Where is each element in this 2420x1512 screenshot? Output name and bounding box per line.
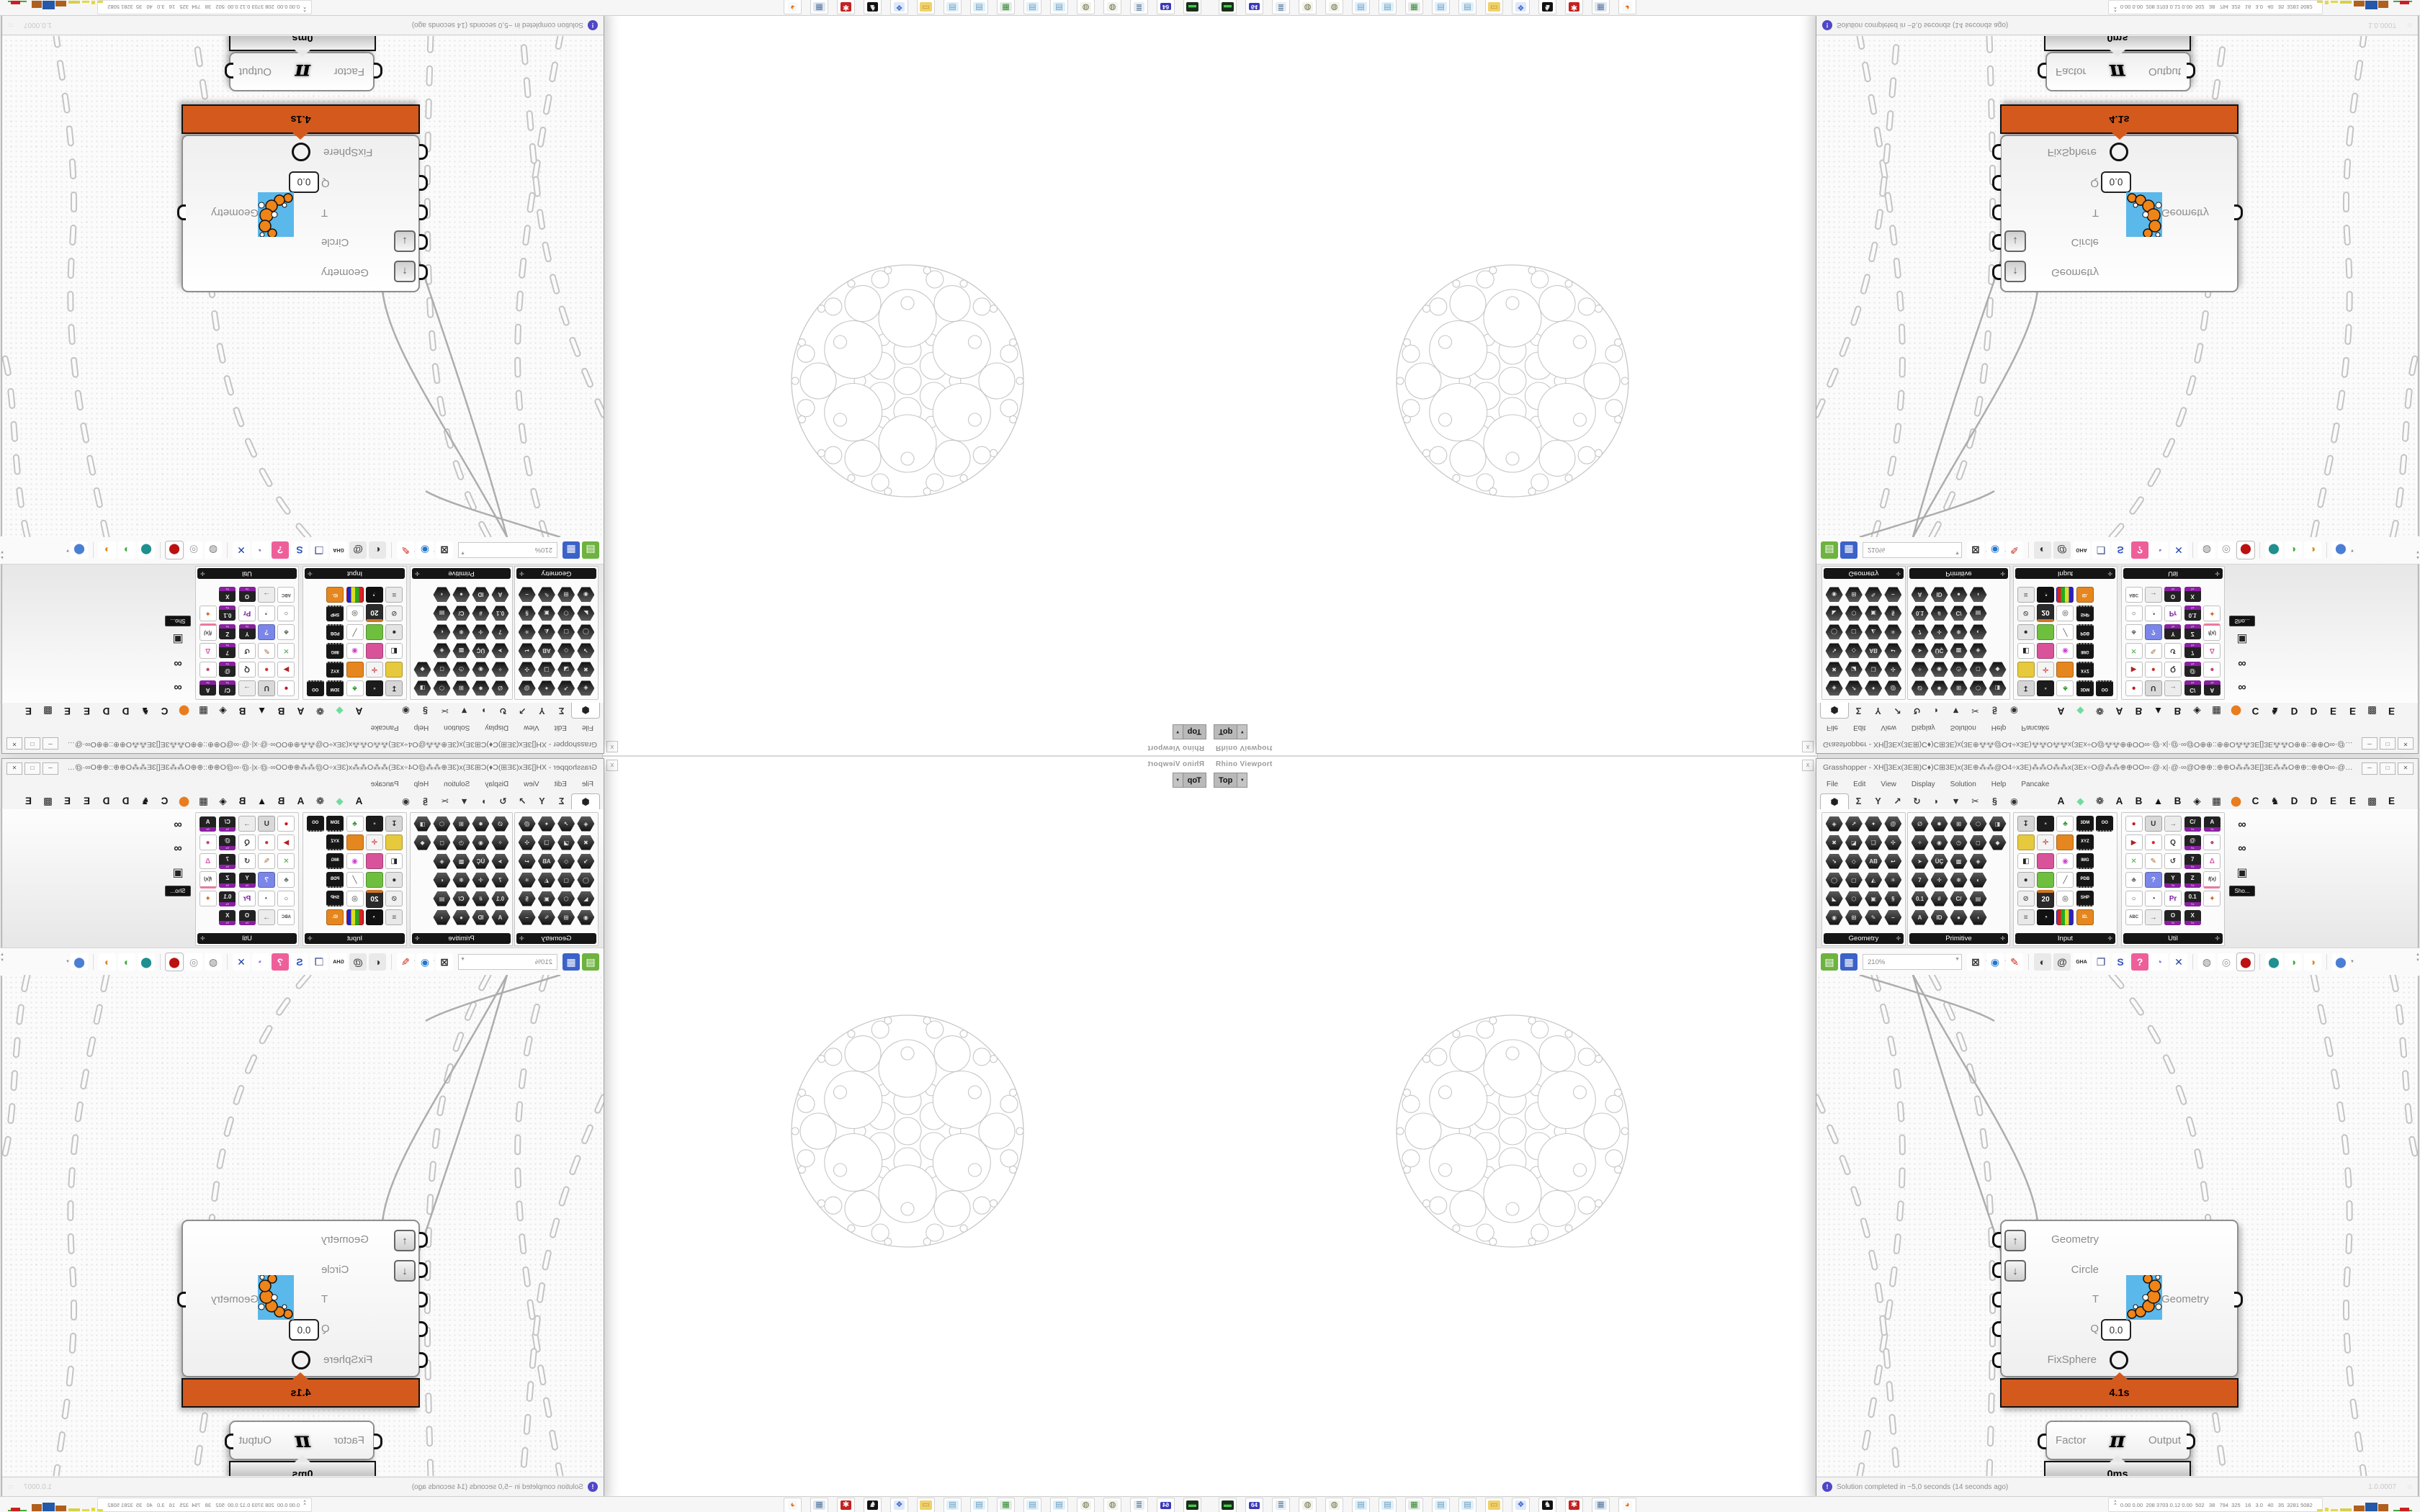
palette-cell-icon[interactable]: Y≡x (239, 625, 256, 640)
palette-cell-icon[interactable]: ABC (277, 587, 295, 603)
tab-plugin[interactable]: D (2285, 703, 2304, 719)
navball-icon[interactable]: ◐ (2034, 953, 2051, 971)
palette-cell-icon[interactable]: → (2164, 680, 2182, 696)
tab-plugin[interactable]: ◈ (2187, 793, 2207, 809)
preview-off-icon[interactable]: ◍ (205, 953, 222, 971)
palette-cell-icon[interactable]: ID. (2076, 587, 2094, 603)
palette-cell-icon[interactable]: ↧ (2017, 680, 2035, 696)
tab-category-icon[interactable]: ↗ (1888, 793, 1907, 809)
palette-cell-icon[interactable]: X≡x (219, 588, 236, 603)
zoom-extents-icon[interactable]: ⊠▼ (1967, 541, 1984, 559)
palette-cell-icon[interactable]: ✛ (2037, 662, 2054, 678)
balloons-icon[interactable]: ◔ (252, 541, 269, 559)
palette-cell-icon[interactable]: ◐ (1970, 873, 1987, 888)
palette-cell-icon[interactable]: ⊞ (453, 681, 470, 696)
palette-cell-icon[interactable]: ◇ (557, 644, 575, 659)
tab-plugin[interactable]: C (155, 793, 174, 809)
palette-cell-icon[interactable]: ✖ (577, 835, 594, 850)
palette-cell-icon[interactable]: ▪ (2037, 816, 2054, 832)
preview-eye-icon[interactable]: ◉▼ (416, 541, 434, 559)
palette-cell-icon[interactable]: ◇ (1845, 854, 1863, 869)
balloons-icon[interactable]: ◔ (252, 953, 269, 971)
tab-plugin[interactable]: ◆ (2071, 793, 2090, 809)
tab-params-selected[interactable]: ⬢ (1820, 793, 1849, 809)
palette-cell-icon[interactable]: ◧ (2017, 853, 2035, 869)
palette-cell-icon[interactable]: ✣ (1884, 835, 1901, 850)
preview-wireframe-icon[interactable]: ◎ (185, 953, 202, 971)
palette-cell-icon[interactable]: @ (1884, 681, 1901, 696)
tab-category-icon[interactable]: ↻ (1907, 793, 1927, 809)
palette-cell-icon[interactable]: → (258, 909, 275, 925)
palette-cell-icon[interactable]: ⊞ (453, 816, 470, 832)
palette-cell-icon[interactable]: ✣ (519, 835, 536, 850)
notepad-icon[interactable]: ▤ (1379, 0, 1397, 14)
menu-item-help[interactable]: Help (414, 780, 429, 788)
palette-cell-icon[interactable]: ◉ (346, 853, 364, 869)
palette-cell-icon[interactable]: AB (1865, 644, 1882, 659)
palette-cell-icon[interactable]: ● (258, 662, 275, 678)
palette-cell-icon[interactable]: ▢ (1845, 873, 1863, 888)
palette-cell-icon[interactable]: ID (472, 910, 490, 925)
palette-cell-icon[interactable]: ∞ (2231, 814, 2253, 836)
palette-cell-icon[interactable]: 0.1 (492, 606, 509, 621)
tab-plugin[interactable]: A (2051, 703, 2071, 719)
cylinder-teal-icon[interactable]: ⬤ (2265, 541, 2282, 559)
save-file-icon[interactable]: ▦ (563, 953, 580, 971)
palette-label-input[interactable]: Input✛ (305, 933, 405, 944)
wire-cross-icon[interactable]: ✕ (2170, 541, 2187, 559)
sphere-blue-icon[interactable]: ⬤▼ (2332, 953, 2349, 971)
palette-cell-icon[interactable]: XYZ (2076, 662, 2094, 678)
input-grip[interactable] (1992, 204, 2001, 220)
palette-cell-icon[interactable]: ⊘ (2017, 891, 2035, 906)
q-value-box[interactable]: 0.0 (289, 171, 319, 193)
palette-cell-icon[interactable]: ♣ (277, 624, 295, 640)
cylinder-green-icon[interactable]: ◑ (2285, 953, 2302, 971)
palette-cell-icon[interactable]: 20 (2037, 605, 2054, 623)
palette-cell-icon[interactable]: ✎ (258, 643, 275, 659)
palette-cell-icon[interactable] (2037, 624, 2054, 640)
sketch-pen-icon[interactable]: ✎ (397, 541, 414, 559)
palette-cell-icon[interactable]: ✣ (519, 662, 536, 678)
palette-label-util[interactable]: Util✛ (2123, 568, 2223, 579)
palette-cell-icon[interactable]: → (2145, 587, 2162, 603)
tab-plugin[interactable]: D (2304, 793, 2323, 809)
maximize-button[interactable]: □ (2380, 737, 2396, 750)
palette-cell-icon[interactable]: ≡ (385, 909, 403, 925)
notepad-icon[interactable]: ▤ (1352, 1498, 1370, 1512)
knot-coin-icon[interactable]: ◍ (1299, 0, 1317, 14)
calculator-icon[interactable]: ▦ (810, 1498, 828, 1512)
palette-label-util[interactable]: Util✛ (2123, 933, 2223, 944)
gha-loader-icon[interactable]: GHA (2073, 953, 2090, 971)
palette-cell-icon[interactable]: ✛ (366, 834, 383, 850)
chat-monitor-icon[interactable]: ❖ (890, 1498, 908, 1512)
search-s-icon[interactable]: S (291, 953, 308, 971)
palette-cell-icon[interactable]: – (519, 588, 536, 603)
tab-plugin[interactable]: ▩ (2362, 703, 2382, 719)
palette-cell-icon[interactable]: Z≡x (2184, 873, 2201, 888)
palette-cell-icon[interactable]: ? (258, 872, 275, 888)
preview-eye-icon[interactable]: ◉▼ (1986, 953, 2004, 971)
tab-plugin[interactable]: C (2246, 703, 2265, 719)
zoom-level-combo[interactable]: 210%▼ (1863, 542, 1962, 558)
palette-cell-icon[interactable]: ▤ (434, 606, 451, 621)
wolf-icon[interactable]: ♞ (1538, 1498, 1556, 1512)
palette-cell-icon[interactable]: ↧ (385, 680, 403, 696)
palette-cell-icon[interactable]: ❋ (1950, 873, 1968, 888)
palette-cell-icon[interactable]: ⬡ (557, 891, 575, 906)
fixsphere-toggle[interactable] (2110, 143, 2128, 161)
palette-cell-icon[interactable]: Pr (2164, 606, 2182, 621)
fixsphere-component-node[interactable]: ↑ ↓ Geometry Circle T Q FixSphere 0.0 (2000, 1220, 2238, 1377)
palette-cell-icon[interactable]: ◆ (1989, 662, 2007, 678)
floppy-64-icon[interactable]: 64 (1157, 0, 1175, 14)
palette-cell-icon[interactable]: ✎ (1865, 588, 1882, 603)
palette-cell-icon[interactable]: ╱ (2056, 872, 2074, 888)
tab-plugin[interactable]: A (2051, 793, 2071, 809)
toolbar-scroll-arrows[interactable]: ▲ ▼ (2416, 549, 2420, 559)
tab-plugin[interactable]: D (116, 703, 135, 719)
tab-plugin[interactable]: ▩ (38, 703, 58, 719)
palette-cell-icon[interactable]: Δ (200, 853, 217, 869)
chat-monitor-icon[interactable]: ❖ (890, 0, 908, 14)
tab-plugin[interactable]: ▦ (194, 793, 213, 809)
preview-shaded-icon[interactable]: ⬤ (166, 953, 183, 971)
tab-plugin[interactable]: A (349, 793, 369, 809)
palette-cell-icon[interactable]: ❏ (538, 662, 555, 678)
palette-cell-icon[interactable]: ○ (2125, 606, 2143, 621)
zoom-level-combo[interactable]: 210%▼ (458, 954, 557, 970)
palette-cell-icon[interactable] (366, 853, 383, 869)
menu-item-display[interactable]: Display (485, 724, 508, 732)
red-gear-icon[interactable]: ✱ (837, 0, 855, 14)
palette-cell-icon[interactable]: ◎ (2056, 891, 2074, 906)
toolbar-scroll-arrows[interactable]: ▲ ▼ (2416, 953, 2420, 963)
palette-cell-icon[interactable]: ➤ (1912, 644, 1929, 659)
palette-cell-icon[interactable]: ∞ (167, 838, 189, 860)
palette-cell-icon[interactable]: # (1931, 606, 1948, 621)
palette-cell-icon[interactable] (346, 662, 364, 678)
palette-cell-icon[interactable] (2017, 662, 2035, 678)
palette-cell-icon[interactable]: ◪ (1845, 835, 1863, 850)
palette-cell-icon[interactable]: C/≡x (2184, 681, 2201, 696)
palette-cell-icon[interactable]: ◈ (577, 816, 594, 832)
palette-cell-icon[interactable]: ↩ (1884, 854, 1901, 869)
palette-cell-icon[interactable]: ▶ (2125, 662, 2143, 678)
palette-cell-icon[interactable]: ∞ (2231, 676, 2253, 698)
palette-label-geometry[interactable]: Geometry✛ (516, 933, 596, 944)
palette-cell-icon[interactable]: ◉ (2056, 643, 2074, 659)
palette-cell-icon[interactable] (346, 587, 364, 603)
printer-scroll-icon[interactable]: ≣ (1130, 0, 1148, 14)
palette-cell-icon[interactable]: ✳ (1884, 873, 1901, 888)
preview-wireframe-icon[interactable]: ◎ (2218, 953, 2235, 971)
palette-cell-icon[interactable]: ◈ (434, 644, 451, 659)
palette-cell-icon[interactable]: ▩ (453, 644, 470, 659)
tab-plugin[interactable]: ◈ (213, 793, 233, 809)
palette-cell-icon[interactable]: ◖ (434, 588, 451, 603)
palette-cell-icon[interactable]: Pr (2164, 891, 2182, 906)
calculator-icon[interactable]: ▦ (1592, 1498, 1610, 1512)
zoom-extents-icon[interactable]: ⊠▼ (436, 953, 453, 971)
preview-eye-icon[interactable]: ◉▼ (416, 953, 434, 971)
palette-cell-icon[interactable]: ⊞ (1845, 910, 1863, 925)
palette-cell-icon[interactable]: 7≡x (219, 644, 236, 659)
palette-cell-icon[interactable]: ▢ (557, 873, 575, 888)
palette-cell-icon[interactable]: ▪ (366, 816, 383, 832)
search-s-icon[interactable]: S (2112, 541, 2129, 559)
palette-cell-icon[interactable]: A≡x (200, 816, 216, 832)
tab-plugin[interactable]: B (2168, 793, 2187, 809)
palette-cell-icon[interactable]: Z≡x (219, 873, 236, 888)
palette-cell-icon[interactable]: ✧ (1912, 662, 1929, 678)
palette-cell-icon[interactable]: ○ (277, 891, 295, 906)
tab-plugin[interactable]: D (2304, 703, 2323, 719)
palette-cell-icon[interactable]: ∅ (1912, 681, 1929, 696)
palette-expand-icon[interactable]: ✛ (2215, 568, 2220, 579)
palette-expand-icon[interactable]: ✛ (415, 568, 420, 579)
palette-cell-icon[interactable]: ◣ (577, 606, 594, 621)
tab-category-icon[interactable]: Σ (552, 793, 571, 809)
fixsphere-component-node[interactable]: ↑ ↓ Geometry Circle T Q FixSphere 0.0 (181, 135, 420, 292)
palette-expand-icon[interactable]: ✛ (2000, 933, 2005, 944)
palette-cell-icon[interactable]: ↧ (385, 816, 403, 832)
palette-cell-icon[interactable]: ∞ (167, 676, 189, 698)
preview-off-icon[interactable]: ◍ (2198, 953, 2215, 971)
palette-cell-icon[interactable]: ◎ (346, 891, 364, 906)
palette-cell-icon[interactable]: ◔ (2145, 606, 2162, 621)
palette-cell-icon[interactable]: ▶ (277, 834, 295, 850)
palette-label-util[interactable]: Util✛ (197, 568, 297, 579)
tab-category-icon[interactable]: § (416, 703, 435, 719)
palette-cell-icon[interactable]: ? (2145, 624, 2162, 640)
firefox-icon[interactable]: ◕ (784, 0, 802, 14)
palette-cell-icon[interactable]: → (2164, 816, 2182, 832)
tab-category-icon[interactable]: ✂ (1966, 793, 1985, 809)
palette-cell-icon[interactable] (2037, 643, 2054, 659)
tab-plugin[interactable]: A (2110, 703, 2129, 719)
palette-cell-icon[interactable]: § (519, 891, 536, 906)
notepad-icon[interactable]: ▤ (1458, 1498, 1476, 1512)
notepad-icon[interactable]: ▤ (1050, 1498, 1068, 1512)
knot-coin-icon[interactable]: ◍ (1077, 0, 1095, 14)
tab-plugin[interactable]: E (2343, 793, 2362, 809)
palette-cell-icon[interactable]: ÜÇ (472, 644, 490, 659)
menu-item-display[interactable]: Display (485, 780, 508, 788)
palette-cell-icon[interactable]: Q (238, 834, 256, 850)
palette-cell-icon[interactable]: Δ (2203, 643, 2220, 659)
palette-label-util[interactable]: Util✛ (197, 933, 297, 944)
palette-cell-icon[interactable]: ✎ (2145, 643, 2162, 659)
palette-cell-icon[interactable]: ✦ (200, 606, 217, 621)
export-window-icon[interactable]: ❐ (2092, 541, 2110, 559)
palette-cell-icon[interactable]: Δ (200, 643, 217, 659)
tab-category-icon[interactable]: § (1985, 793, 2004, 809)
palette-cell-icon[interactable]: ● (453, 588, 470, 603)
palette-label-primitive[interactable]: Primitive✛ (412, 933, 511, 944)
close-icon[interactable]: x (1802, 741, 1814, 752)
pi-factor-component-node[interactable]: Factor π Output (229, 52, 375, 91)
palette-cell-icon[interactable]: ⊘ (2017, 606, 2035, 621)
palette-cell-icon[interactable]: ◈ (1970, 854, 1987, 869)
palette-cell-icon[interactable]: ◷ (1950, 662, 1968, 678)
palette-expand-icon[interactable]: ✛ (200, 933, 205, 944)
palette-cell-icon[interactable]: ↩ (519, 644, 536, 659)
palette-cell-icon[interactable]: SHP (2076, 891, 2094, 906)
palette-expand-icon[interactable]: ✛ (1896, 933, 1901, 944)
palette-cell-icon[interactable]: C/ (453, 891, 470, 906)
palette-cell-icon[interactable]: ✎ (258, 853, 275, 869)
knot-coin-icon[interactable]: ◍ (1077, 1498, 1095, 1512)
palette-cell-icon[interactable]: ● (2017, 624, 2035, 640)
toolbar-scroll-arrows[interactable]: ▲ ▼ (0, 549, 4, 559)
input-grip[interactable] (1992, 1232, 2001, 1248)
resize-grip[interactable]: ∷ (2408, 22, 2412, 28)
tab-category-icon[interactable]: Σ (1849, 793, 1868, 809)
tab-plugin[interactable]: ▦ (2207, 793, 2226, 809)
palette-cell-icon[interactable]: ◷ (1950, 835, 1968, 850)
tab-plugin[interactable]: ❁ (310, 703, 330, 719)
chat-monitor-icon[interactable]: ❖ (1512, 0, 1530, 14)
tab-plugin[interactable]: A (349, 703, 369, 719)
menu-item-view[interactable]: View (524, 780, 539, 788)
sphere-blue-icon[interactable]: ⬤▼ (71, 541, 88, 559)
palette-cell-icon[interactable]: ● (2145, 662, 2162, 678)
open-file-icon[interactable]: ▤ (1821, 953, 1838, 971)
grasshopper-canvas[interactable]: ↑ ↓ Geometry Circle T Q FixSphere 0.0 (2, 36, 604, 537)
palette-cell-icon[interactable]: ⬡ (557, 606, 575, 621)
palette-cell-icon[interactable]: 3DM (2076, 816, 2094, 832)
palette-cell-icon[interactable]: PDB (326, 872, 344, 888)
palette-cell-icon[interactable]: ◪ (557, 662, 575, 678)
palette-cell-icon[interactable]: ◈ (577, 681, 594, 696)
input-grip[interactable] (1992, 175, 2001, 191)
tab-plugin[interactable]: D (2285, 793, 2304, 809)
palette-cell-icon[interactable]: AB (538, 854, 555, 869)
output-grip[interactable] (177, 204, 186, 220)
palette-cell-icon[interactable]: ✎ (2145, 853, 2162, 869)
red-gear-icon[interactable]: ✱ (1565, 1498, 1583, 1512)
tab-plugin[interactable]: E (77, 703, 97, 719)
palette-cell-icon[interactable]: IMG (326, 643, 344, 659)
palette-cell-icon[interactable]: ▪ (2037, 680, 2054, 696)
tab-plugin[interactable]: B (272, 793, 291, 809)
palette-cell-icon[interactable]: OO (2096, 680, 2113, 696)
viewport-name-dropdown[interactable]: Top ▼ (1214, 724, 1247, 739)
palette-cell-icon[interactable] (346, 909, 364, 925)
export-window-icon[interactable]: ❐ (2092, 953, 2110, 971)
palette-cell-icon[interactable]: 0.1≡x (219, 891, 236, 906)
tab-category-icon[interactable]: ↻ (493, 793, 513, 809)
sphere-orange-icon[interactable]: ◑ (2304, 541, 2321, 559)
palette-label-input[interactable]: Input✛ (2015, 933, 2115, 944)
menu-item-file[interactable]: File (582, 724, 593, 732)
unknown-objects-box-icon[interactable]: ? (272, 953, 289, 971)
palette-cell-icon[interactable]: ✎ (1865, 910, 1882, 925)
tab-category-icon[interactable]: ▼ (1946, 793, 1966, 809)
palette-cell-icon[interactable]: ✖ (577, 662, 594, 678)
sphere-orange-icon[interactable]: ◑ (99, 953, 116, 971)
input-grip[interactable] (1992, 234, 2001, 250)
tab-category-icon[interactable]: Y (1868, 793, 1888, 809)
palette-expand-icon[interactable]: ✛ (2107, 568, 2112, 579)
preview-wireframe-icon[interactable]: ◎ (185, 541, 202, 559)
tab-plugin[interactable]: ▲ (252, 793, 272, 809)
sphere-blue-icon[interactable]: ⬤▼ (71, 953, 88, 971)
folder-yellow-icon[interactable]: ▭ (917, 1498, 935, 1512)
fixsphere-toggle[interactable] (292, 1351, 310, 1369)
unknown-objects-box-icon[interactable]: ? (272, 541, 289, 559)
palette-cell-icon[interactable]: ◧ (2017, 643, 2035, 659)
palette-cell-icon[interactable]: 0.1 (1912, 606, 1929, 621)
palette-cell-icon[interactable]: ╱ (346, 624, 364, 640)
palette-cell-icon[interactable]: ❏ (538, 835, 555, 850)
palette-cell-icon[interactable]: ● (385, 872, 403, 888)
palette-cell-icon[interactable]: ◣ (1826, 891, 1843, 906)
wire-cross-icon[interactable]: ✕ (233, 953, 250, 971)
palette-cell-icon[interactable]: ◉ (1826, 588, 1843, 603)
palette-cell-icon[interactable]: ↺ (238, 643, 256, 659)
palette-cell-icon[interactable]: ◉ (472, 835, 490, 850)
palette-cell-icon[interactable] (366, 872, 383, 888)
notepad-icon[interactable]: ▤ (1352, 0, 1370, 14)
palette-cell-icon[interactable]: 7 (492, 625, 509, 640)
palette-cell-icon[interactable]: ◯ (577, 873, 594, 888)
monitor-green-app-icon[interactable]: ▬ (1219, 0, 1237, 14)
palette-cell-icon[interactable]: ↺ (238, 853, 256, 869)
notepad-icon[interactable]: ▤ (970, 1498, 988, 1512)
tab-category-icon[interactable]: ▼ (1946, 703, 1966, 719)
palette-cell-icon[interactable]: Q (2164, 834, 2182, 850)
palette-cell-icon[interactable]: ⬡ (1970, 816, 1987, 832)
palette-cell-icon[interactable]: ◨ (1989, 816, 2007, 832)
palette-cell-icon[interactable]: SHP (2076, 606, 2094, 621)
floppy-64-icon[interactable]: 64 (1245, 1498, 1263, 1512)
calculator-icon[interactable]: ▦ (1592, 0, 1610, 14)
palette-cell-icon[interactable]: ➤ (492, 854, 509, 869)
palette-cell-icon[interactable]: ▩ (453, 854, 470, 869)
palette-cell-icon[interactable]: Y≡x (2164, 625, 2181, 640)
palette-cell-icon[interactable]: SHP (326, 606, 344, 621)
maximize-button[interactable]: □ (2380, 762, 2396, 775)
palette-cell-icon[interactable]: ✣ (1884, 662, 1901, 678)
palette-expand-icon[interactable]: ✛ (200, 568, 205, 579)
palette-cell-icon[interactable]: U (2145, 816, 2162, 832)
palette-cell-icon[interactable]: ♣ (346, 816, 364, 832)
tab-plugin[interactable]: ▦ (194, 703, 213, 719)
palette-cell-icon[interactable]: ⊞ (557, 910, 575, 925)
close-icon[interactable]: x (606, 760, 618, 771)
palette-cell-icon[interactable]: ↘ (577, 644, 594, 659)
palette-expand-icon[interactable]: ✛ (308, 933, 313, 944)
palette-cell-icon[interactable]: A (1912, 588, 1929, 603)
unknown-objects-box-icon[interactable]: ? (2131, 953, 2148, 971)
palette-cell-icon[interactable]: A≡x (2204, 681, 2220, 696)
tab-plugin[interactable]: C (2246, 793, 2265, 809)
palette-cell-icon[interactable]: ✳ (1884, 625, 1901, 640)
palette-cell-icon[interactable]: ⬡ (1845, 606, 1863, 621)
palette-cell-icon[interactable]: ✕ (277, 643, 295, 659)
palette-cell-icon[interactable]: ▢ (557, 625, 575, 640)
palette-cell-icon[interactable]: ▤ (1970, 606, 1987, 621)
palette-cell-icon[interactable]: # (1931, 891, 1948, 906)
grasshopper-canvas[interactable]: ↑ ↓ Geometry Circle T Q FixSphere 0.0 (2, 975, 604, 1476)
monitor-keyboard-icon[interactable]: ▦ (997, 1498, 1015, 1512)
tab-category-icon[interactable]: ◉ (2004, 703, 2024, 719)
palette-cell-icon[interactable]: ❋ (453, 873, 470, 888)
tab-plugin[interactable]: E (2323, 703, 2343, 719)
